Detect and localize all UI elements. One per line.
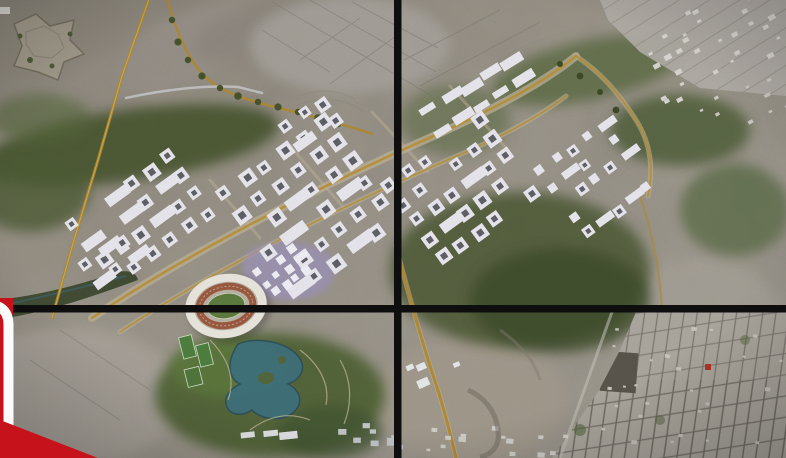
vignette (0, 0, 786, 458)
video-wall-bezel-vertical (394, 0, 402, 458)
masterplan-map: Aerial masterplan rendering of a planned… (0, 0, 786, 458)
video-wall-bezel-horizontal (0, 305, 786, 313)
broadcast-frame: Aerial masterplan rendering of a planned… (0, 0, 786, 458)
